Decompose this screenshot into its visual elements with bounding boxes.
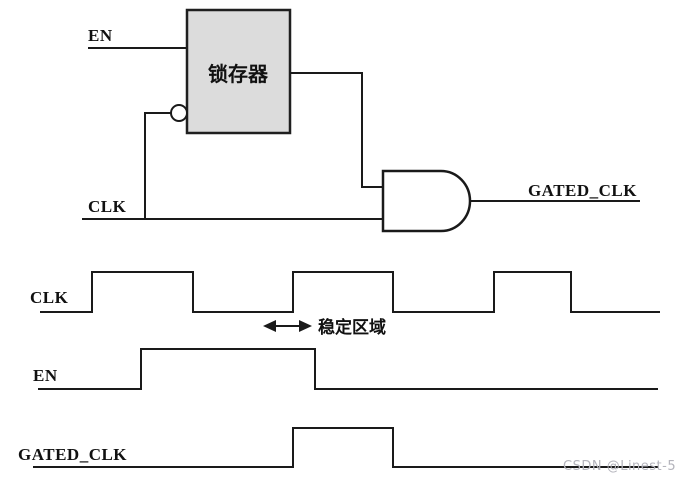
- watermark-text: CSDN @Linest-5: [563, 459, 676, 474]
- circuit-clk-label: CLK: [88, 197, 127, 216]
- timing-diagram: CLK 稳定区域 EN GATED_CLK: [18, 272, 660, 467]
- circuit-en-label: EN: [88, 26, 113, 45]
- timing-clk-label: CLK: [30, 288, 69, 307]
- en-waveform: [38, 349, 658, 389]
- clk-waveform: [40, 272, 660, 312]
- clock-gating-diagram: EN 锁存器 CLK GATED_CLK CLK: [0, 0, 678, 480]
- diagram-canvas: EN 锁存器 CLK GATED_CLK CLK: [0, 0, 678, 480]
- stable-region-annotation: 稳定区域: [263, 317, 386, 337]
- arrow-right-head-icon: [299, 320, 312, 332]
- circuit-schematic: EN 锁存器 CLK GATED_CLK: [82, 10, 640, 231]
- and-gate-icon: [383, 171, 470, 231]
- inverter-bubble-icon: [171, 105, 187, 121]
- timing-en-label: EN: [33, 366, 58, 385]
- latch-label: 锁存器: [208, 62, 269, 86]
- timing-gated-clk-label: GATED_CLK: [18, 445, 127, 464]
- stable-region-label: 稳定区域: [318, 317, 386, 337]
- latch-output-wire: [290, 73, 383, 187]
- clk-to-latch-wire: [145, 113, 171, 219]
- arrow-left-head-icon: [263, 320, 276, 332]
- circuit-gated-clk-label: GATED_CLK: [528, 181, 637, 200]
